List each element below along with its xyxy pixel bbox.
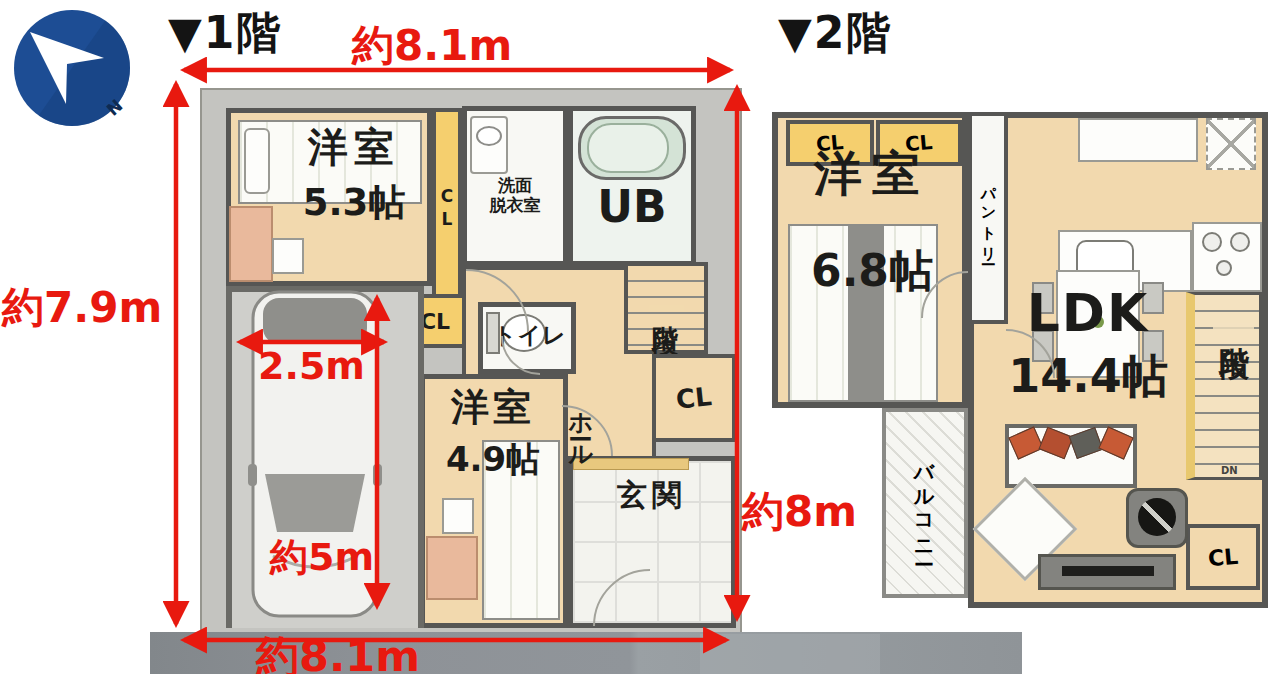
stove-burner3-icon <box>1216 260 1232 276</box>
closet-top-label: CL <box>437 186 457 232</box>
dim-right-label: 約8m <box>742 484 857 540</box>
round-table-top-icon <box>1138 498 1176 536</box>
sofa-cushion-icon <box>1069 427 1104 459</box>
dim-top-label: 約8.1m <box>352 18 512 74</box>
sofa-cushion-icon <box>1008 426 1043 459</box>
washroom-line1: 洗面 <box>498 175 532 195</box>
dim-car-length-label: 約5m <box>270 532 374 583</box>
desk-icon <box>229 206 273 282</box>
entrance-label: 玄関 <box>582 478 722 513</box>
dim-car-width-label: 2.5m <box>258 344 365 388</box>
floorplan-canvas: N ▼1階 ▼2階 洋室 5.3帖 CL 洗面 脱衣室 UB 階段 CL CL <box>0 0 1280 674</box>
bathtub-inner-icon <box>587 123 669 173</box>
bedroom2-name-label: 洋室 <box>418 386 568 430</box>
bedroom2-size-label: 4.9帖 <box>414 440 572 479</box>
toilet-label: トイレ <box>488 322 572 348</box>
floor1-title: ▼1階 <box>168 4 282 63</box>
chair-icon <box>272 238 304 274</box>
hatched-area-icon <box>1206 118 1256 170</box>
stairs-dn-label: DN <box>1221 465 1238 476</box>
stairs-1f-label: 階段 <box>649 305 684 311</box>
bedroom1-size-label: 5.3帖 <box>270 182 438 225</box>
room-closet-stairs-1f: CL <box>652 354 736 442</box>
road-patch <box>700 634 880 674</box>
stairs-2f-label: 階段 <box>1213 323 1254 329</box>
desk2-icon <box>426 536 478 600</box>
ldk-name-label: LDK <box>996 284 1180 344</box>
closet-hall-label: CL <box>420 309 450 334</box>
chair2-icon <box>442 498 474 534</box>
room-balcony-2f: バルコニー <box>882 408 968 598</box>
pantry-label: パントリー <box>979 176 998 259</box>
washbasin-bowl-icon <box>476 126 502 146</box>
bedroom1-name-label: 洋室 <box>274 124 434 170</box>
floor2-title: ▼2階 <box>778 4 892 63</box>
sofa-cushion-icon <box>1098 426 1133 459</box>
room-closet-c-2f: CL <box>1186 524 1260 590</box>
stove-burner2-icon <box>1230 232 1250 252</box>
closet-c-label: CL <box>1207 543 1239 571</box>
compass-north-icon: N <box>10 6 138 132</box>
room-stairs-1f: 階段 <box>624 262 708 354</box>
balcony-label: バルコニー <box>912 450 939 556</box>
stove-counter-icon <box>1192 222 1262 292</box>
pillow-icon <box>244 128 270 194</box>
washroom-label: 洗面 脱衣室 <box>464 176 566 215</box>
ldk-size-label: 14.4帖 <box>972 350 1204 403</box>
kitchen-counter-icon <box>1078 118 1198 162</box>
dim-bottom-label: 約8.1m <box>256 628 420 674</box>
washroom-line2: 脱衣室 <box>490 195 541 215</box>
dim-left-label: 約7.9m <box>2 280 162 336</box>
bedroom3-size-label: 6.8帖 <box>780 246 964 297</box>
closet-stairs-label: CL <box>675 381 714 415</box>
bedroom3-name-label: 洋室 <box>782 146 962 201</box>
bath-label: UB <box>580 182 684 233</box>
stove-burner1-icon <box>1202 232 1222 252</box>
sofa-cushion-icon <box>1039 427 1074 460</box>
tv-icon <box>1062 566 1154 576</box>
